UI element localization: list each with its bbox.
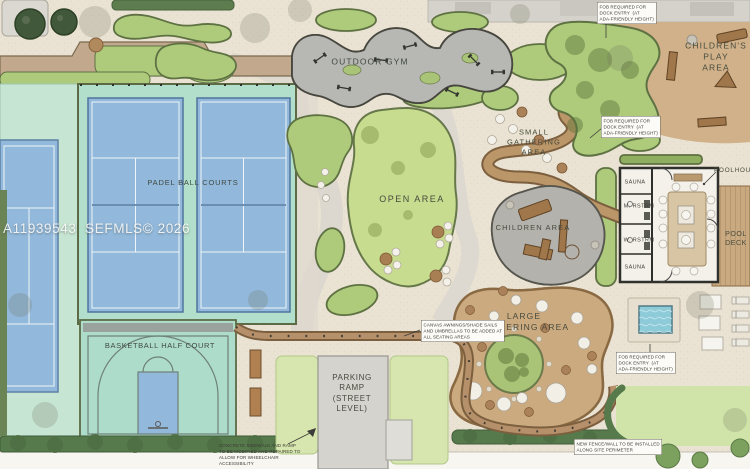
- label-mens-restroom: M. RSTRM: [624, 203, 654, 210]
- note-fob-entry-middle: FOB REQUIRED FOR DOCK ENTRY (AT ADA-FRIE…: [601, 116, 720, 160]
- label-open-area: OPEN AREA: [379, 194, 445, 206]
- label-outdoor-gym: OUTDOOR GYM: [331, 56, 408, 67]
- children-area-playground: [492, 186, 605, 285]
- label-pool-deck: POOL DECK: [725, 230, 747, 248]
- site-plan-canvas: OUTDOOR GYM OPEN AREA SMALL GATHERING AR…: [0, 0, 750, 469]
- basketball-court: [80, 320, 261, 440]
- note-sidewalk-ramp: CONCRETE SIDEWALK AND RAMP TO BE MODIFIE…: [217, 441, 388, 469]
- label-sauna-north: SAUNA: [625, 179, 646, 186]
- label-parking-ramp: PARKING RAMP (STREET LEVEL): [332, 373, 372, 415]
- note-fob-entry-south: FOB REQUIRED FOR DOCK ENTRY (AT ADA-FRIE…: [616, 352, 735, 396]
- label-womens-restroom: W. RSTRM: [624, 237, 655, 244]
- label-poolhouse: POOLHOUSE: [714, 167, 750, 175]
- mls-watermark: A11939543 SEFMLS© 2026: [3, 221, 190, 236]
- label-basketball-half-court: BASKETBALL HALF COURT: [105, 341, 215, 351]
- spa-pool: [639, 306, 672, 333]
- note-perimeter-wall: NEW FENCE/WALL TO BE INSTALLED ALONG SIT…: [574, 439, 750, 469]
- note-fob-entry-north: FOB REQUIRED FOR DOCK ENTRY (AT ADA-FRIE…: [597, 2, 716, 46]
- label-padel-ball-courts: PADEL BALL COURTS: [147, 178, 238, 188]
- label-children-area: CHILDREN AREA: [496, 223, 571, 233]
- label-sauna-south: SAUNA: [625, 264, 646, 271]
- label-small-gathering-area: SMALL GATHERING AREA: [507, 127, 561, 156]
- note-awnings: CANVAS AWNINGS/SHADE SAILS AND UMBRELLAS…: [421, 320, 588, 364]
